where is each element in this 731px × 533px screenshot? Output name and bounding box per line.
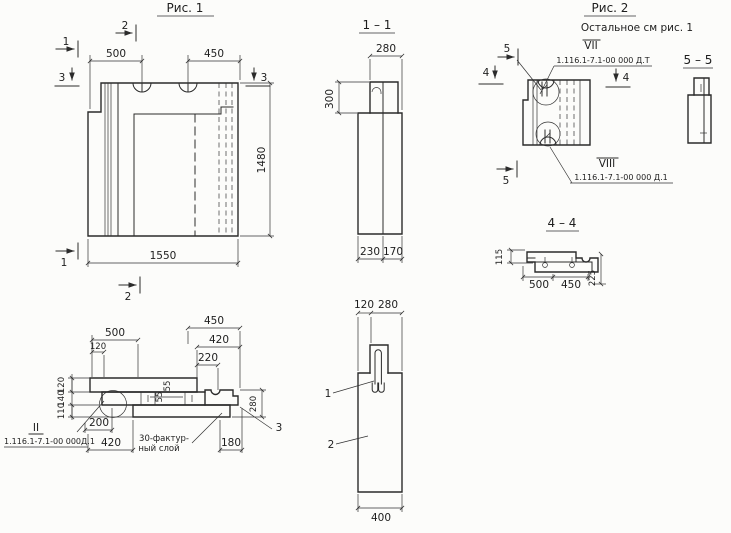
detail-facing-layer xyxy=(133,405,230,417)
section-4-4: 4 – 4 115 500 450 225 xyxy=(495,216,606,291)
dim-450-label: 450 xyxy=(204,48,224,60)
section-marker-4: 4 xyxy=(623,72,630,84)
section-marker-1: 1 xyxy=(61,257,68,269)
section-5-5-head xyxy=(694,78,709,95)
vertical-section-body xyxy=(358,373,402,492)
section-1-1: 1 – 1 280 300 230 170 xyxy=(324,18,403,263)
dim-450-label: 450 xyxy=(204,315,224,327)
facing-layer-note-line2: ный слой xyxy=(138,444,179,454)
figure1-panel-outline xyxy=(88,83,238,236)
section-5-5: 5 – 5 xyxy=(683,53,713,143)
section-marker-3: 3 xyxy=(59,72,66,84)
technical-drawing: Рис. 1 500 450 1480 xyxy=(0,0,731,533)
section-marker-5: 5 xyxy=(504,43,511,55)
detail-middle-layer xyxy=(102,392,205,405)
section-5-5-body xyxy=(688,95,711,143)
dim-120-top-label: 120 xyxy=(90,342,106,352)
dim-55-b-label: 55 xyxy=(155,392,165,403)
dim-280-label: 280 xyxy=(376,43,396,55)
dim-220-label: 220 xyxy=(198,352,218,364)
item-label-1: 1 xyxy=(325,388,332,400)
detail-right-block xyxy=(205,390,238,405)
section-marker-2: 2 xyxy=(122,20,129,32)
dim-225-label: 225 xyxy=(588,270,598,286)
dim-280-label: 280 xyxy=(378,299,398,311)
drawing-canvas: Рис. 1 500 450 1480 xyxy=(0,0,731,533)
dim-500-label: 500 xyxy=(529,279,549,291)
dim-1550-label: 1550 xyxy=(150,250,177,262)
section-marker-1: 1 xyxy=(63,36,70,48)
dim-300-label: 300 xyxy=(324,89,336,109)
dim-120-label: 120 xyxy=(354,299,374,311)
vertical-section-stub xyxy=(370,345,388,373)
position-label-viii: VIII xyxy=(599,158,615,170)
anchor-bolt xyxy=(570,263,575,268)
dim-500-label: 500 xyxy=(105,327,125,339)
figure1-title: Рис. 1 xyxy=(167,1,204,15)
section-1-1-title: 1 – 1 xyxy=(363,18,392,32)
section-4-4-title: 4 – 4 xyxy=(548,216,577,230)
doc-number-viii: 1.116.1-7.1-00 000 Д.1 xyxy=(574,173,667,182)
facing-layer-note-line1: 30-фактур- xyxy=(139,434,189,444)
dim-400-label: 400 xyxy=(371,512,391,524)
detail-callout-circle-ii xyxy=(100,391,127,418)
dim-180-label: 180 xyxy=(221,437,241,449)
figure-2: Рис. 2 Остальное см рис. 1 5 4 VII 1.1 xyxy=(479,1,693,187)
dim-420-bottom-label: 420 xyxy=(101,437,121,449)
dim-170-label: 170 xyxy=(383,246,403,258)
section-1-1-head xyxy=(370,82,398,113)
dim-280-label: 280 xyxy=(249,396,259,412)
dim-110-left-label: 110 xyxy=(57,403,67,419)
section-1-1-body xyxy=(358,113,402,234)
detail-section: 500 120 450 420 220 120 140 110 55 55 20… xyxy=(4,315,282,454)
position-label-vii: VII xyxy=(584,40,597,52)
dim-450-label: 450 xyxy=(561,279,581,291)
dim-1480-label: 1480 xyxy=(256,147,268,174)
section-marker-3: 3 xyxy=(276,422,283,434)
anchor-loop xyxy=(372,350,384,393)
section-5-5-title: 5 – 5 xyxy=(684,53,713,67)
detail-callout-circle-viii xyxy=(536,122,560,146)
section-marker-2: 2 xyxy=(125,291,132,303)
dim-115-label: 115 xyxy=(495,249,505,265)
dim-500-label: 500 xyxy=(106,48,126,60)
detail-top-layer xyxy=(90,378,197,392)
figure2-title: Рис. 2 xyxy=(592,1,629,15)
vertical-section: 120 280 1 2 400 xyxy=(325,299,402,524)
figure2-subtitle: Остальное см рис. 1 xyxy=(581,22,693,34)
doc-number-ii: 1.116.1-7.1-00 000Д.1 xyxy=(4,437,95,446)
dim-55-a-label: 55 xyxy=(163,381,173,392)
section-marker-5: 5 xyxy=(503,175,510,187)
section-marker-3: 3 xyxy=(261,72,268,84)
section-marker-4: 4 xyxy=(483,67,490,79)
dim-230-label: 230 xyxy=(360,246,380,258)
position-label-ii: II xyxy=(33,422,39,434)
dim-420-top-label: 420 xyxy=(209,334,229,346)
doc-number-vii: 1.116.1-7.1-00 000 Д.Т xyxy=(556,56,649,65)
item-label-2: 2 xyxy=(328,439,335,451)
dim-200-label: 200 xyxy=(89,417,109,429)
anchor-bolt xyxy=(543,263,548,268)
figure-1: Рис. 1 500 450 1480 xyxy=(55,1,274,303)
